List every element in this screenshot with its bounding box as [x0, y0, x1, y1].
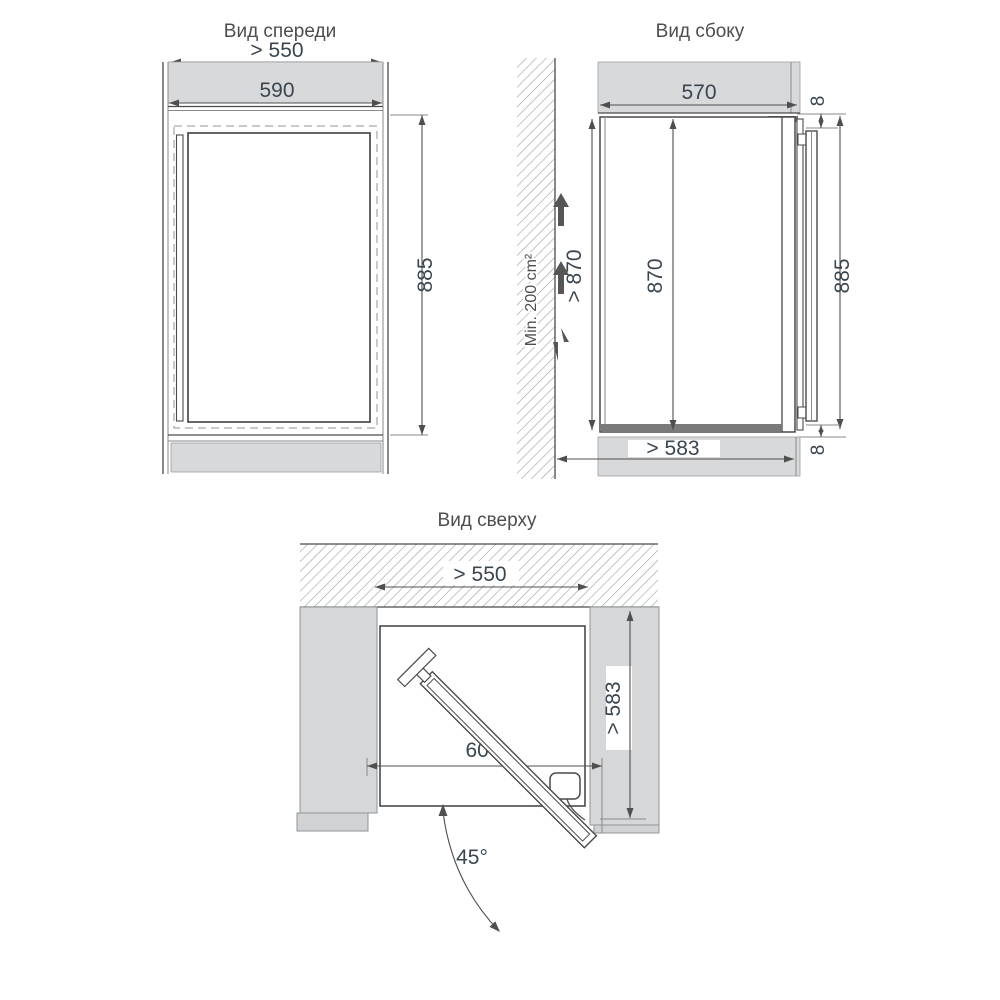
side-bottom-trim	[600, 424, 782, 431]
side-dim-bottom-gap: 8	[797, 425, 846, 455]
top-left-cabinet	[297, 607, 377, 831]
side-view-title: Вид сбоку	[656, 21, 745, 42]
side-niche-height-label: > 870	[563, 249, 586, 302]
side-top-gap-label: 8	[808, 96, 829, 107]
side-overall-height-label: 885	[831, 258, 854, 293]
front-plinth	[168, 435, 383, 472]
side-bottom-gap-label: 8	[808, 445, 829, 456]
front-height-label: 885	[414, 257, 437, 292]
front-dim-niche-width: > 550	[171, 39, 381, 62]
side-base-depth-label: > 583	[646, 437, 699, 460]
side-dim-top-gap: 8	[797, 96, 846, 128]
front-door	[188, 133, 370, 422]
side-body-height-label: 870	[644, 258, 667, 293]
top-niche-depth-label: > 583	[602, 681, 625, 734]
side-dim-overall-height: 885	[831, 116, 854, 429]
side-ventilation-note: Min. 200 cm²	[523, 253, 540, 346]
top-niche-width-label: > 550	[453, 563, 506, 586]
top-view-title: Вид сверху	[438, 510, 537, 531]
front-width-label: 590	[259, 79, 294, 102]
front-niche-width-label: > 550	[250, 39, 303, 62]
installation-drawing: Вид спереди > 550 590	[0, 0, 1000, 1000]
front-view: Вид спереди > 550 590	[163, 21, 437, 474]
side-depth-label: 570	[681, 81, 716, 104]
front-dim-height: 885	[390, 115, 437, 435]
top-view: Вид сверху > 550 600	[297, 510, 659, 932]
side-view: Вид сбоку Min. 200 cm² 570	[517, 21, 854, 479]
front-door-handle	[177, 135, 184, 421]
drawing-svg: Вид спереди > 550 590	[0, 0, 1000, 1000]
top-door-angle-label: 45°	[456, 846, 488, 869]
side-dim-niche-height: > 870	[563, 119, 592, 430]
side-appliance-body	[600, 116, 798, 432]
top-dim-door-angle: 45°	[439, 804, 501, 932]
side-door	[797, 119, 817, 430]
